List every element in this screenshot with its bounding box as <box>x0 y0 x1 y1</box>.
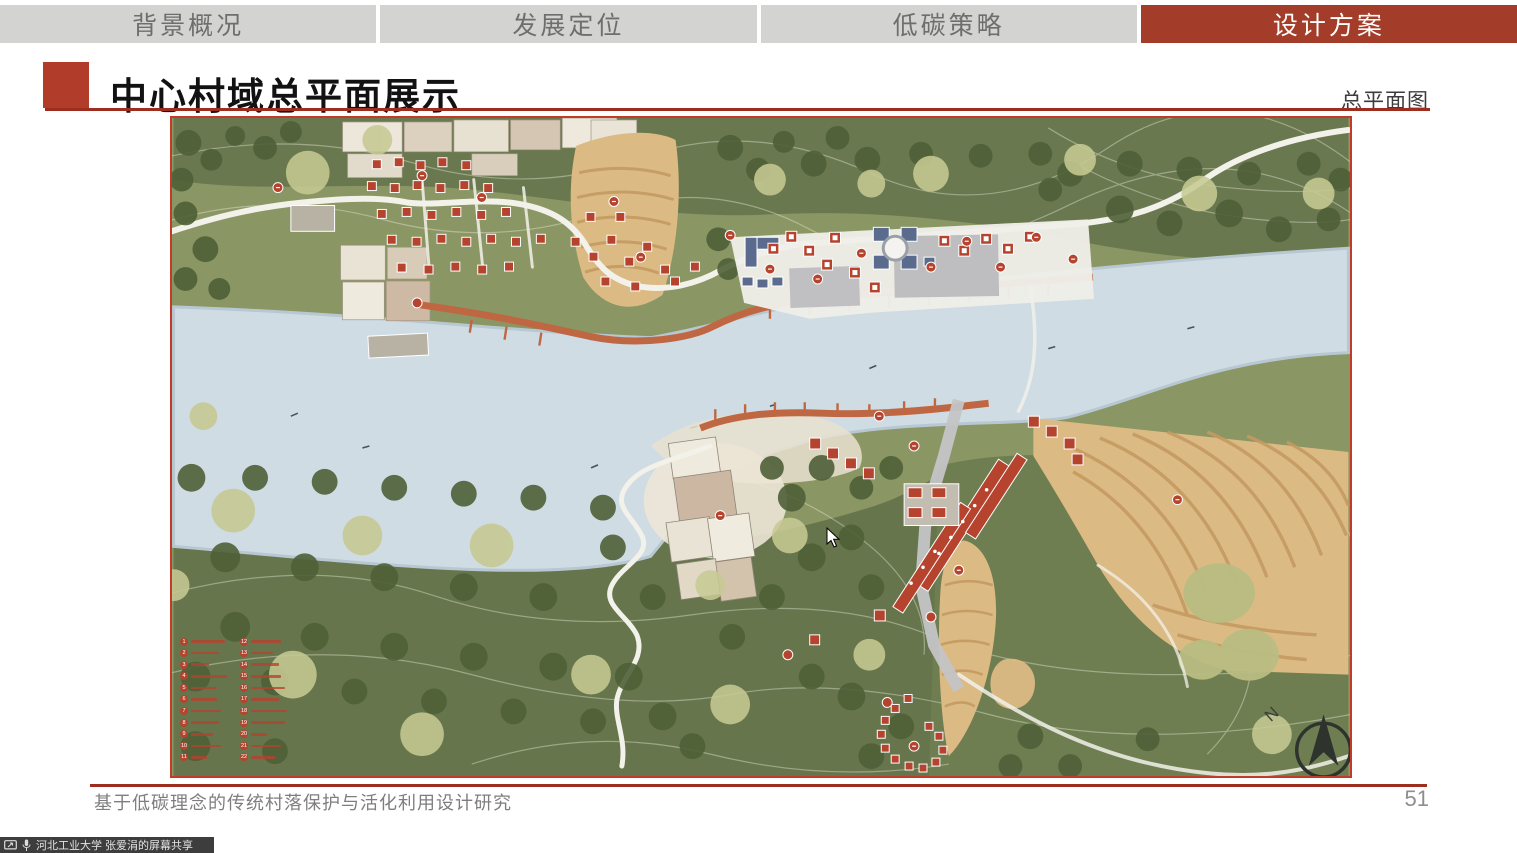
legend-item: 13 <box>240 650 287 657</box>
legend-item: 6 <box>180 696 227 703</box>
legend-item: 20 <box>240 731 287 738</box>
tab-development-positioning[interactable]: 发展定位 <box>380 5 756 43</box>
legend-label-text <box>251 733 267 736</box>
legend-number: 21 <box>240 742 248 750</box>
legend-item: 8 <box>180 719 227 726</box>
legend-label-text <box>251 698 279 701</box>
legend-number: 8 <box>180 719 188 727</box>
legend-label-text <box>191 687 217 690</box>
legend-label-text <box>191 733 213 736</box>
legend-label-text <box>251 640 281 643</box>
legend-label-text <box>191 675 227 678</box>
legend-number: 10 <box>180 742 188 750</box>
legend-number: 15 <box>240 672 248 680</box>
master-plan-illustration: N <box>172 118 1350 776</box>
legend-item: 1 <box>180 638 227 645</box>
legend-item: 19 <box>240 719 287 726</box>
legend-number: 13 <box>240 649 248 657</box>
title-underline <box>45 108 1430 111</box>
legend-item: 17 <box>240 696 287 703</box>
legend-label-text <box>191 663 209 666</box>
legend-label-text <box>191 698 217 701</box>
legend-item: 15 <box>240 673 287 680</box>
legend-item: 2 <box>180 650 227 657</box>
legend-item: 11 <box>180 754 227 761</box>
footer-divider-line <box>90 784 1427 787</box>
screen-share-bar: 河北工业大学 张爱涓的屏幕共享 <box>0 837 214 853</box>
legend-label-text <box>251 675 281 678</box>
legend-label-text <box>191 652 219 655</box>
legend-item: 16 <box>240 684 287 691</box>
legend-number: 9 <box>180 730 188 738</box>
footer-project-title: 基于低碳理念的传统村落保护与活化利用设计研究 <box>94 789 512 815</box>
tab-background-overview[interactable]: 背景概况 <box>0 5 376 43</box>
legend-number: 1 <box>180 638 188 646</box>
microphone-icon <box>22 839 31 852</box>
legend-number: 18 <box>240 707 248 715</box>
legend-item: 10 <box>180 742 227 749</box>
legend-number: 12 <box>240 638 248 646</box>
legend-item: 22 <box>240 754 287 761</box>
legend-number: 5 <box>180 684 188 692</box>
legend-label-text <box>251 756 275 759</box>
title-accent-square <box>43 62 89 108</box>
legend-number: 16 <box>240 684 248 692</box>
legend-label-text <box>251 710 287 713</box>
slide-tab-bar: 背景概况 发展定位 低碳策略 设计方案 <box>0 5 1517 43</box>
legend-number: 3 <box>180 661 188 669</box>
page-title: 中心村域总平面展示 <box>110 66 461 120</box>
legend-label-text <box>251 663 279 666</box>
legend-number: 7 <box>180 707 188 715</box>
map-legend: 1 2 3 4 5 6 7 8 9 10 11 12 13 14 15 16 1… <box>180 638 308 761</box>
legend-item: 5 <box>180 684 227 691</box>
legend-item: 7 <box>180 708 227 715</box>
tab-design-scheme[interactable]: 设计方案 <box>1141 5 1517 43</box>
legend-label-text <box>251 687 285 690</box>
legend-item: 14 <box>240 661 287 668</box>
legend-label-text <box>251 652 273 655</box>
mouse-cursor <box>826 527 840 548</box>
tab-low-carbon-strategy[interactable]: 低碳策略 <box>761 5 1137 43</box>
legend-item: 3 <box>180 661 227 668</box>
legend-label-text <box>191 745 221 748</box>
master-plan-map: N 1 2 3 4 5 6 7 8 9 10 11 12 13 14 15 16… <box>170 116 1352 778</box>
page-number: 51 <box>1405 786 1429 812</box>
legend-number: 19 <box>240 719 248 727</box>
legend-label-text <box>191 710 221 713</box>
screen-share-icon <box>4 840 17 851</box>
legend-number: 11 <box>180 753 188 761</box>
legend-item: 18 <box>240 708 287 715</box>
legend-number: 17 <box>240 695 248 703</box>
legend-label-text <box>191 756 207 759</box>
legend-item: 9 <box>180 731 227 738</box>
legend-item: 12 <box>240 638 287 645</box>
legend-number: 6 <box>180 695 188 703</box>
legend-label-text <box>191 721 219 724</box>
legend-item: 4 <box>180 673 227 680</box>
legend-number: 20 <box>240 730 248 738</box>
screen-share-text: 河北工业大学 张爱涓的屏幕共享 <box>36 837 193 853</box>
legend-item: 21 <box>240 742 287 749</box>
legend-number: 14 <box>240 661 248 669</box>
legend-label-text <box>251 721 285 724</box>
legend-label-text <box>251 745 281 748</box>
legend-number: 22 <box>240 753 248 761</box>
legend-label-text <box>191 640 225 643</box>
legend-number: 2 <box>180 649 188 657</box>
legend-number: 4 <box>180 672 188 680</box>
